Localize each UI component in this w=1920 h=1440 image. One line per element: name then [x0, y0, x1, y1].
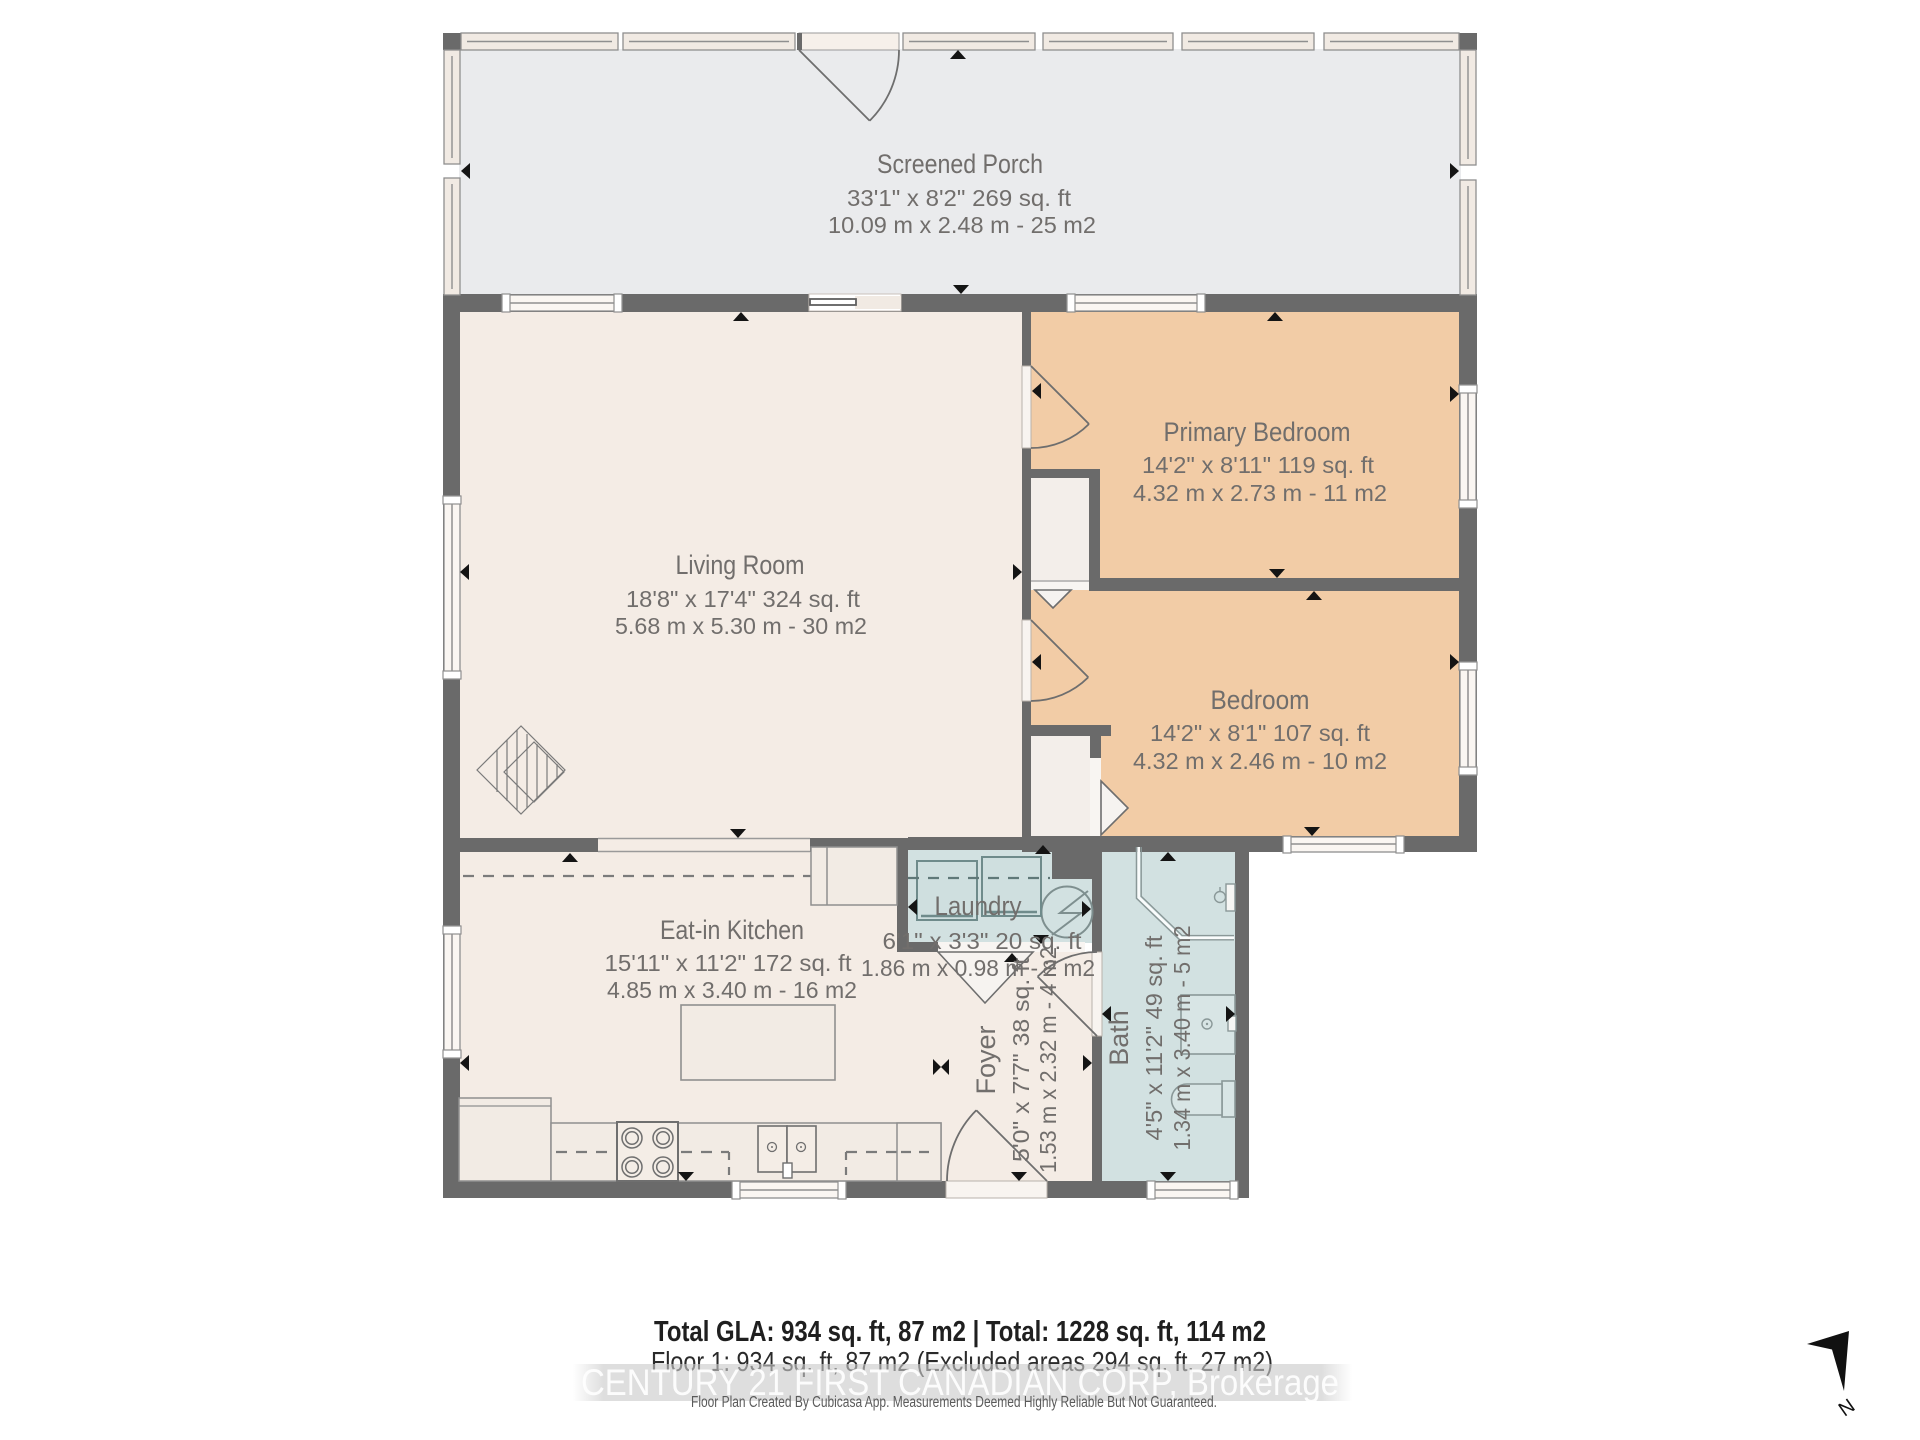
svg-text:14'2" x 8'11" 119 sq. ft: 14'2" x 8'11" 119 sq. ft	[1142, 452, 1375, 478]
svg-text:33'1" x 8'2" 269 sq. ft: 33'1" x 8'2" 269 sq. ft	[847, 185, 1072, 211]
svg-text:Living Room: Living Room	[676, 550, 805, 580]
svg-text:Foyer: Foyer	[971, 1025, 1001, 1094]
svg-text:Eat-in Kitchen: Eat-in Kitchen	[660, 915, 804, 945]
svg-text:Bedroom: Bedroom	[1211, 685, 1310, 715]
svg-text:1.53 m x 2.32 m - 4 m2: 1.53 m x 2.32 m - 4 m2	[1035, 947, 1061, 1173]
svg-text:1.34 m x 3.40 m - 5 m2: 1.34 m x 3.40 m - 5 m2	[1169, 926, 1195, 1151]
svg-text:Bath: Bath	[1104, 1010, 1134, 1066]
svg-text:4.32 m x 2.46 m - 10 m2: 4.32 m x 2.46 m - 10 m2	[1133, 748, 1387, 774]
svg-text:Screened Porch: Screened Porch	[877, 149, 1043, 179]
svg-text:Floor Plan Created By Cubicasa: Floor Plan Created By Cubicasa App. Meas…	[691, 1394, 1217, 1411]
svg-text:18'8" x 17'4" 324 sq. ft: 18'8" x 17'4" 324 sq. ft	[626, 586, 861, 612]
svg-text:Laundry: Laundry	[935, 891, 1022, 921]
svg-text:Total GLA: 934 sq. ft, 87 m2 |: Total GLA: 934 sq. ft, 87 m2 | Total: 12…	[654, 1316, 1266, 1348]
svg-text:10.09 m x 2.48 m - 25 m2: 10.09 m x 2.48 m - 25 m2	[828, 212, 1096, 238]
svg-text:15'11" x 11'2" 172 sq. ft: 15'11" x 11'2" 172 sq. ft	[605, 950, 853, 976]
svg-text:4.85 m x 3.40 m - 16 m2: 4.85 m x 3.40 m - 16 m2	[607, 977, 857, 1003]
svg-text:5.68 m x 5.30 m - 30 m2: 5.68 m x 5.30 m - 30 m2	[615, 613, 867, 639]
svg-text:Primary Bedroom: Primary Bedroom	[1164, 417, 1351, 447]
svg-text:5'0" x 7'7" 38 sq. ft: 5'0" x 7'7" 38 sq. ft	[1008, 957, 1034, 1162]
svg-text:4.32 m x 2.73 m - 11 m2: 4.32 m x 2.73 m - 11 m2	[1133, 480, 1387, 506]
svg-text:14'2" x 8'1" 107 sq. ft: 14'2" x 8'1" 107 sq. ft	[1150, 720, 1371, 746]
svg-text:4'5" x 11'2" 49 sq. ft: 4'5" x 11'2" 49 sq. ft	[1141, 935, 1167, 1141]
